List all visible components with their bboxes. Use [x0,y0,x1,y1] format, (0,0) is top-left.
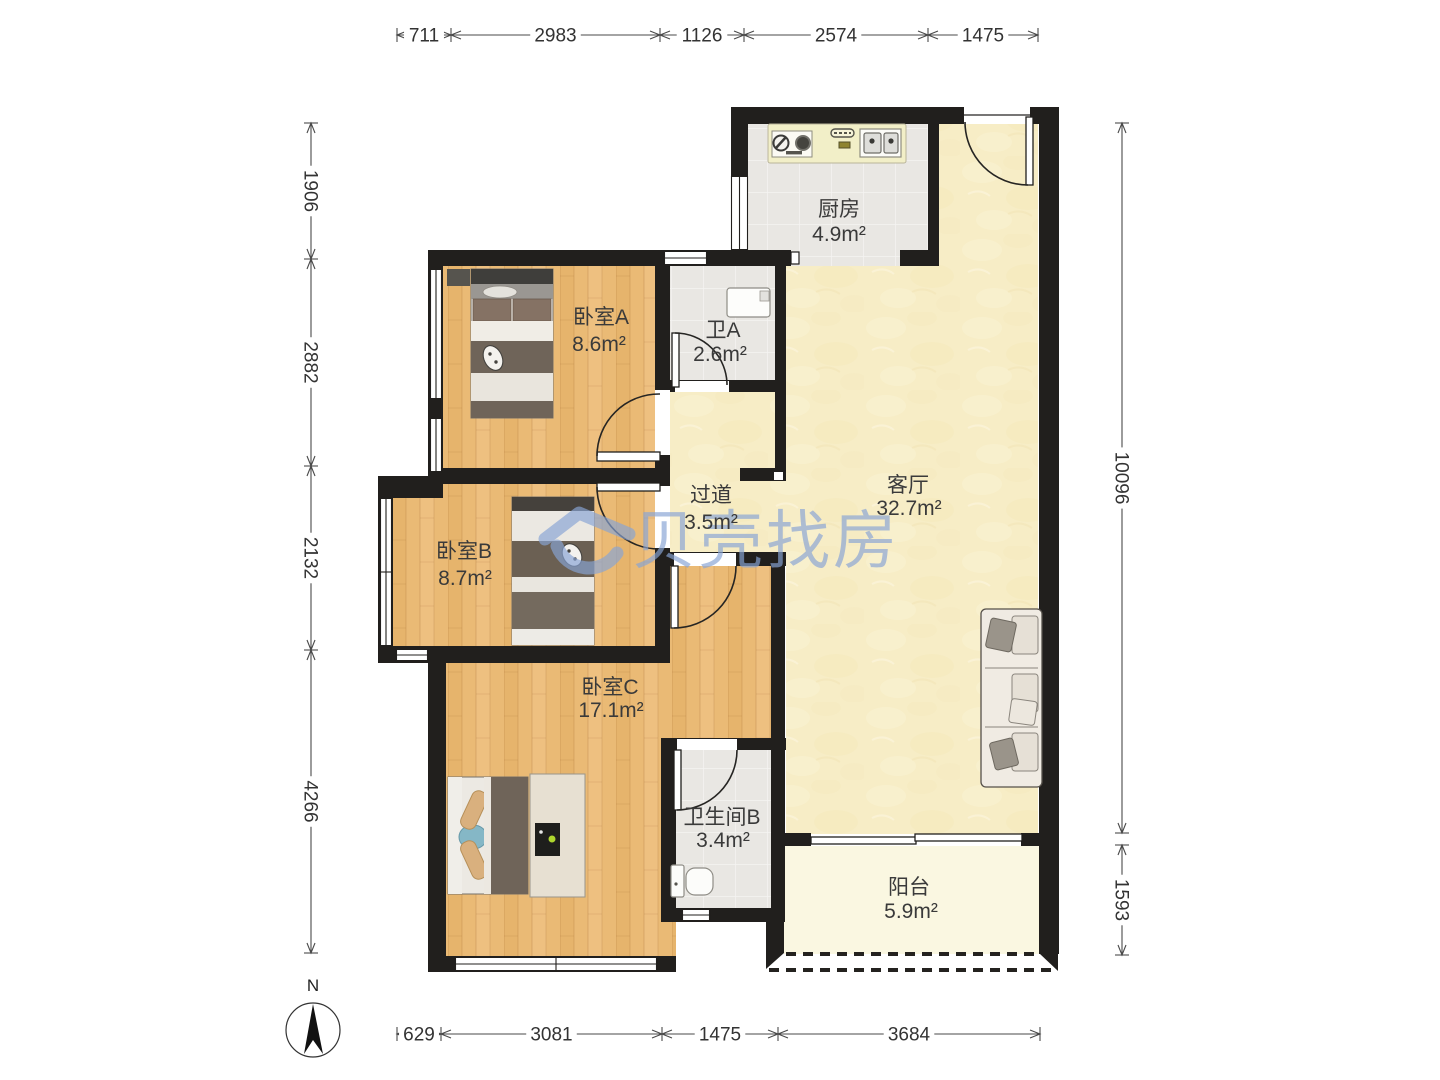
svg-text:2882: 2882 [300,341,321,383]
svg-text:3.4m²: 3.4m² [696,829,750,852]
svg-text:4.9m²: 4.9m² [812,223,866,246]
svg-text:2983: 2983 [534,25,576,46]
svg-text:阳台: 阳台 [888,876,930,899]
svg-text:5.9m²: 5.9m² [884,900,938,923]
svg-text:贝壳找房: 贝壳找房 [632,505,900,577]
svg-text:客厅: 客厅 [887,474,929,497]
svg-text:8.7m²: 8.7m² [438,567,492,590]
svg-text:32.7m²: 32.7m² [876,497,941,520]
svg-text:10096: 10096 [1111,452,1132,505]
svg-text:17.1m²: 17.1m² [578,699,643,722]
svg-text:N: N [307,976,319,995]
svg-text:711: 711 [409,25,439,46]
svg-text:3684: 3684 [888,1024,931,1045]
svg-text:629: 629 [403,1024,435,1045]
svg-text:1126: 1126 [682,25,723,46]
svg-text:4266: 4266 [300,780,321,822]
svg-text:厨房: 厨房 [818,198,860,221]
svg-text:3.5m²: 3.5m² [684,511,738,534]
svg-text:2.6m²: 2.6m² [693,343,747,366]
svg-text:1475: 1475 [699,1024,741,1045]
svg-text:卧室B: 卧室B [436,540,492,563]
svg-text:2574: 2574 [815,25,858,46]
svg-text:1475: 1475 [962,25,1004,46]
svg-text:1593: 1593 [1111,879,1132,921]
svg-text:卧室A: 卧室A [573,306,629,329]
svg-text:卧室C: 卧室C [581,676,638,699]
svg-text:3081: 3081 [530,1024,572,1045]
svg-text:1906: 1906 [300,170,321,212]
svg-text:卫生间B: 卫生间B [683,806,760,829]
svg-text:2132: 2132 [300,537,321,579]
svg-text:过道: 过道 [690,484,732,507]
svg-text:卫A: 卫A [705,319,740,342]
svg-text:8.6m²: 8.6m² [572,333,626,356]
